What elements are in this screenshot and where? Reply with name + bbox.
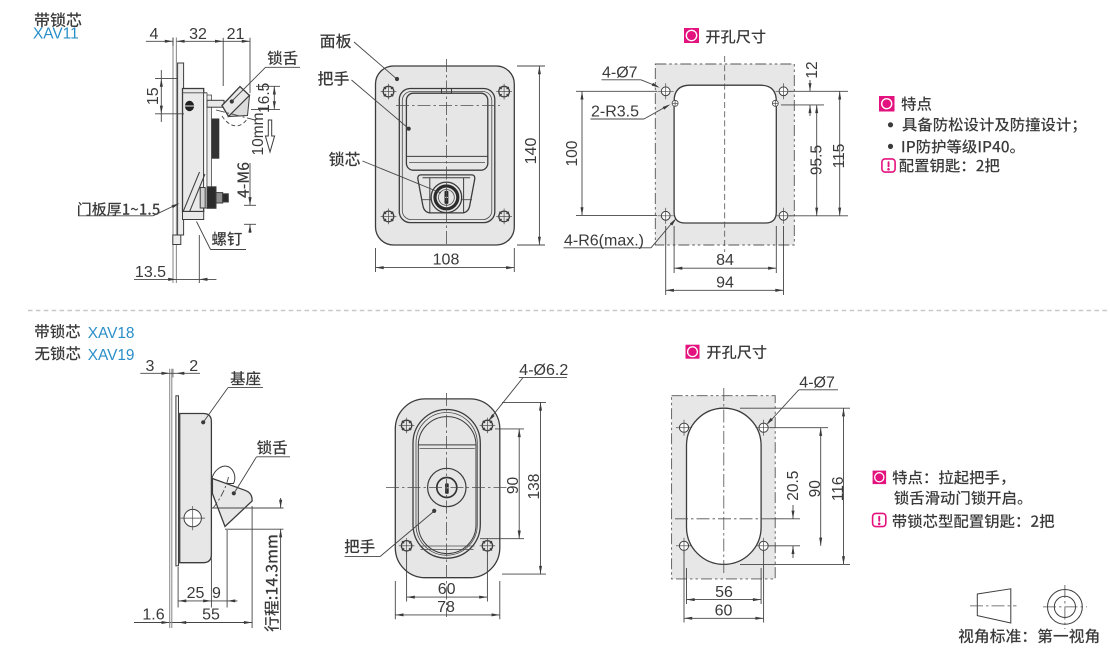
svg-text:100: 100	[564, 140, 581, 166]
svg-text:2-R3.5: 2-R3.5	[591, 104, 639, 121]
svg-text:15: 15	[145, 87, 162, 105]
svg-text:90: 90	[807, 480, 824, 498]
svg-text:20.5: 20.5	[785, 471, 802, 501]
svg-text:60: 60	[715, 602, 733, 619]
svg-text:56: 56	[715, 584, 733, 601]
svg-text:90: 90	[505, 477, 522, 495]
svg-text:4-R6(max.): 4-R6(max.)	[564, 233, 644, 250]
svg-text:115: 115	[831, 144, 848, 169]
svg-text:1.6: 1.6	[142, 607, 164, 624]
svg-text:138: 138	[526, 474, 543, 500]
svg-text:4-Ø7: 4-Ø7	[799, 375, 835, 392]
svg-text:3: 3	[146, 358, 155, 375]
svg-text:4: 4	[150, 26, 159, 43]
svg-text:116: 116	[830, 476, 847, 501]
svg-text:108: 108	[433, 251, 460, 268]
svg-text:55: 55	[202, 607, 220, 624]
svg-text:84: 84	[716, 252, 734, 269]
svg-text:12: 12	[804, 61, 821, 78]
svg-text:XAV18: XAV18	[88, 325, 135, 342]
svg-text:60: 60	[438, 581, 456, 598]
svg-text:13.5: 13.5	[135, 264, 166, 281]
svg-text:16.5: 16.5	[256, 83, 273, 113]
svg-text:9: 9	[212, 585, 221, 602]
svg-text:10mm: 10mm	[250, 112, 267, 155]
svg-text:25: 25	[187, 585, 205, 602]
svg-text:XAV11: XAV11	[33, 26, 79, 43]
svg-text:140: 140	[523, 138, 540, 165]
svg-text:95.5: 95.5	[809, 145, 826, 175]
svg-text:4-Ø6.2: 4-Ø6.2	[519, 362, 568, 379]
svg-text:2: 2	[189, 358, 198, 375]
svg-text:XAV19: XAV19	[88, 347, 135, 364]
svg-text:32: 32	[189, 26, 207, 43]
svg-text:4-Ø7: 4-Ø7	[602, 65, 638, 82]
svg-text:78: 78	[437, 599, 455, 616]
svg-text:21: 21	[227, 26, 245, 43]
svg-text:94: 94	[716, 274, 734, 291]
